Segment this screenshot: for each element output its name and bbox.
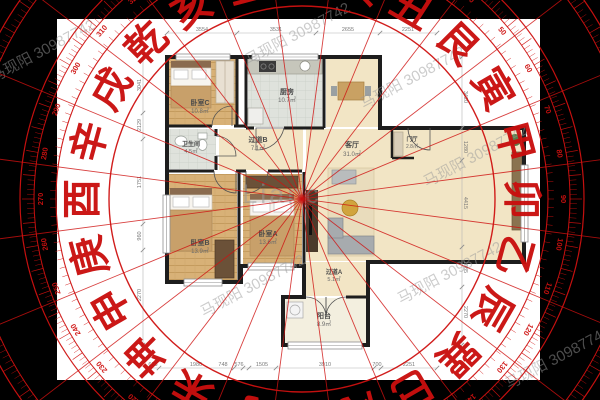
dimension-label: 2129 [137,119,143,131]
room-label: 卫生间 [182,140,200,148]
shoe-cabinet [394,132,403,156]
compass-degree-label: 90 [559,195,568,203]
dimension-label: 2655 [342,27,354,33]
dimension-label: 3910 [319,362,331,368]
pillow [174,70,188,79]
kitchen-sink [300,61,310,71]
dining-chair [331,86,337,96]
room-area: 10.8㎡ [191,107,209,115]
room-area: 10.7㎡ [278,96,296,104]
compass-mountain-character: 午 [282,396,322,400]
room-area: 13.6㎡ [259,238,277,246]
room-area: 13.9㎡ [191,247,209,255]
dimension-label: 960 [137,231,143,240]
fridge [248,108,263,124]
room-area: 2.8㎡ [406,143,418,150]
compass-mountain-character: 酉 [59,179,106,219]
sofa [328,236,374,254]
dimension-label: 748 [218,362,227,368]
bed-headboard [171,61,211,68]
pillow [193,197,209,207]
toilet-tank [198,133,207,139]
compass-degree-label: 270 [36,193,45,206]
room-label: 过道A [326,268,343,276]
room-label: 卧室C [190,98,209,107]
dimension-label: 4415 [462,197,468,209]
room-area: 31.0㎡ [343,150,361,158]
compass-mountain-character: 子 [282,0,322,3]
bed-headboard [170,188,212,195]
washing-machine [287,302,303,318]
screenshot-stage: 卧室C 10.8㎡ 厨房 10.7㎡ 卫生间 4.5㎡ 过道B 7.1㎡ 客厅 … [0,0,600,400]
room-label: 阳台 [317,311,331,320]
dimension-label: 1505 [256,362,268,368]
coffee-table [342,200,358,216]
compass-degree-label: 80 [554,149,564,159]
compass-mountain-character: 卯 [499,179,546,219]
room-label: 门厅 [406,135,418,143]
room-label: 卧室B [190,238,209,247]
room-label: 过道B [248,135,267,144]
dimension-label: 576 [234,362,243,368]
dimension-label: 700 [372,362,381,368]
pillow [173,197,189,207]
floorplan-compass-image: 卧室C 10.8㎡ 厨房 10.7㎡ 卫生间 4.5㎡ 过道B 7.1㎡ 客厅 … [0,0,600,400]
